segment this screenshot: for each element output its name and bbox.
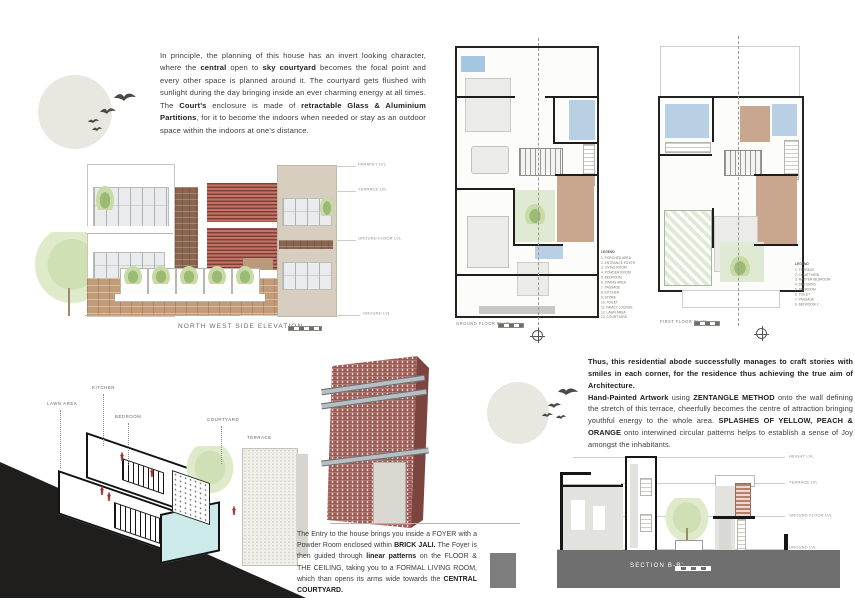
level-leader [240,315,360,316]
label-leader [128,423,129,465]
plan-wall [513,188,515,244]
elevation-window [282,262,332,290]
axon-label-kitchen: KITCHEN [92,386,115,390]
elevation-slab [87,226,173,234]
tower-ground-line [330,523,520,524]
ff-plan-walls [658,96,804,292]
elevation-title: NORTH WEST SIDE ELEVATION [178,323,303,330]
entry-paragraph: The Entry to the house brings you inside… [297,529,477,596]
north-arrow-icon [756,328,767,339]
bedroom-zone [557,176,594,242]
elevation-tree-trunk [68,288,70,316]
courtyard-plant [525,204,545,224]
planter-plant [208,266,226,284]
plan-wall [553,96,555,144]
staircase [724,150,762,176]
scale-figure [784,534,788,550]
planter-ledge [115,294,265,302]
porch-car [465,78,511,132]
courtyard-plant [730,256,750,276]
first-floor-plan [658,46,802,310]
bedroom-zone [756,176,797,244]
legend-title: LEGEND [601,250,662,255]
sofa-set [467,216,509,268]
axon-label-bedroom: BEDROOM [115,415,141,419]
ff-legend: LEGEND 1. TERRACE2. COURTYARD3. MASTER B… [795,262,855,308]
ground-floor-plan [455,46,599,318]
level-label: TERRACE LVL [789,481,818,485]
door-opening [571,500,585,530]
birds-icon [86,90,138,136]
gray-accent-block [490,553,516,588]
planter-plant [124,266,142,284]
balcony-plant [320,196,334,216]
stone-slab [279,240,333,249]
terrace-deck [664,210,712,286]
level-leader [336,166,356,167]
label-leader [60,410,61,468]
level-leader [336,191,356,192]
level-label: HEIGHT LVL [789,455,814,459]
jali-band [207,222,277,228]
ground-band: SECTION B-B' [557,550,840,588]
level-label: TERRACE LVL [358,188,387,192]
planter-plant [180,266,198,284]
axon-label-courtyard: COURTYARD [207,418,239,422]
door-opening [593,506,605,530]
level-label: PARAPET LVL [358,163,386,167]
outro-paragraph: Thus, this residential abode successfull… [588,356,853,451]
column [719,519,731,550]
toilet-room [569,100,595,140]
axon-brick-tower [242,448,298,566]
planter-plant [152,266,170,284]
section-stair-tower [625,456,657,554]
section-drawing: HEIGHT LVL TERRACE LVL GROUND FLOOR LVL … [557,448,855,590]
bedroom-zone [740,106,770,142]
legend-item: 13. COURTYARD [601,315,662,320]
toilet-room [772,104,797,136]
balcony-outline [682,290,780,308]
plan-wall [457,96,515,98]
section-line [738,36,739,326]
intro-paragraph: In principle, the planning of this house… [160,50,426,137]
planter-plant [236,266,254,284]
entrance-pad [479,306,555,314]
human-figure [232,506,236,515]
axon-label-lawn: LAWN AREA [47,402,77,406]
pool [461,56,485,72]
plan-wall [712,208,714,248]
stair-core [630,464,638,548]
toilet-room [665,104,709,138]
plan-wall [457,188,513,190]
plan-wall [457,274,597,276]
level-label: GROUND FLOOR LVL [789,514,832,518]
plan-wall [754,174,798,176]
brick-jali-section [735,483,751,518]
stair-flight [640,478,652,496]
legend-items: 1. TERRACE2. COURTYARD3. MASTER BEDROOM4… [795,268,855,308]
section-line [538,38,539,330]
legend-item: 8. BEDROOM 2 [795,303,855,308]
scale-bar-icon [288,326,322,331]
plan-wall [754,244,798,246]
legend-title: LEGEND [795,262,855,267]
scale-bar-icon [694,321,720,326]
scale-bar-icon [675,566,711,571]
plan-wall [660,154,712,156]
level-label: GROUND LVL [363,312,390,316]
plan-wall [555,174,597,176]
foyer-zone [517,262,549,296]
brick-jali-tower-render [305,352,520,532]
terrace-outline [660,46,800,98]
level-leader [336,240,356,241]
label-leader [221,426,222,464]
birds-icon [540,386,580,428]
level-label: GROUND FLOOR LVL [358,237,401,241]
wardrobe-strip [665,142,711,153]
section-left-room [563,475,621,485]
stair-flight [640,514,652,532]
axon-label-terrace: TERRACE [247,436,272,440]
level-leader [573,457,785,458]
dining-table [471,146,509,174]
north-arrow-icon [532,330,543,341]
presentation-board: In principle, the planning of this house… [0,0,855,605]
label-leader [103,394,104,446]
staircase [519,148,563,176]
plan-wall [712,98,714,142]
hatched-column [737,519,746,552]
scale-bar-icon [498,323,524,328]
legend-items: 1. PORCHED AREA2. ENTRANCE FOYER3. LIVIN… [601,256,662,320]
balcony-plant [96,186,114,210]
plan-wall [553,142,597,144]
tower-door [373,462,406,524]
toilet-room [535,246,563,259]
gf-legend: LEGEND 1. PORCHED AREA2. ENTRANCE FOYER3… [601,250,662,320]
